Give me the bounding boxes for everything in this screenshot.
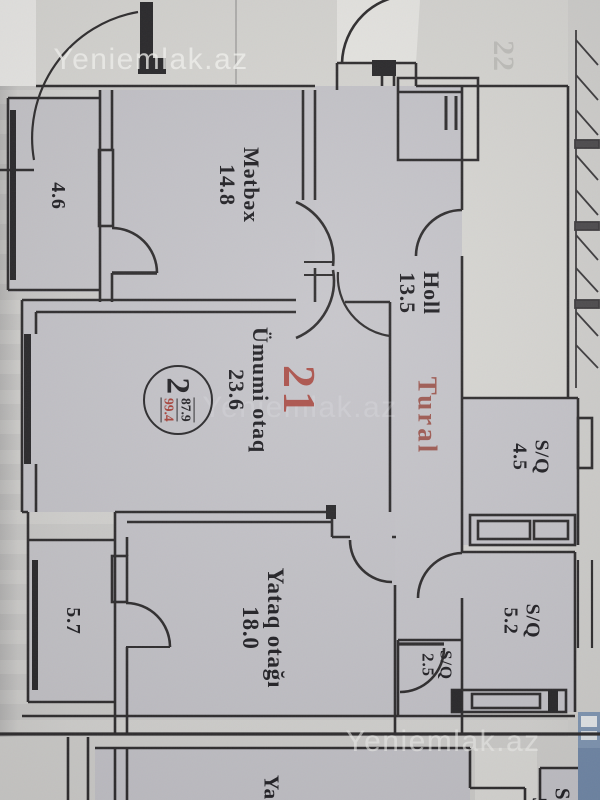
room-label-balcony-bottom: 5.7 [61,607,83,634]
room-label-balcony-top: 4.6 [46,182,68,209]
living-area: 23.6 [224,327,248,453]
watermark-top: Yeniemlak.az [53,43,248,77]
adjacent-bedroom-label-partial: Yata [260,775,283,800]
floorplan-photo: Yeniemlak.az Yeniemlak.az Yeniemlak.az M… [0,0,600,800]
bathroom-1-area: 4.5 [508,440,530,475]
room-label-kitchen: Mətbəx 14.8 [215,147,263,223]
stamp-living-area: 87.9 [179,398,195,422]
stamp-room-count: 2 [162,377,195,394]
balcony-bottom-area: 5.7 [61,607,83,634]
hall-area: 13.5 [395,271,419,315]
room-label-hall: Holl 13.5 [395,271,443,315]
room-label-bathroom-2: S/Q 5.2 [499,604,542,639]
adjacent-bathroom-name-partial: S/Q [551,788,574,800]
apartment-number: 21 [274,365,324,417]
stamp-total-area: 99.4 [162,398,179,422]
living-name: Ümumi otaq [248,327,272,453]
adjacent-bathroom-area-partial: 5. [528,788,551,800]
room-label-living: Ümumi otaq 23.6 [224,327,272,453]
watermark-bottom: Yeniemlak.az [345,725,540,759]
area-stamp-circle: 2 87.9 99.4 [143,365,213,435]
balcony-top-area: 4.6 [46,182,68,209]
room-label-bathroom-3: S/Q 2.5 [418,650,455,680]
adjacent-bathroom-label-partial: S/Q 5. [528,788,573,800]
kitchen-name: Mətbəx [239,147,263,223]
bathroom-1-name: S/Q [530,440,552,475]
hall-name: Holl [419,271,443,315]
bedroom-area: 18.0 [237,568,262,689]
room-label-bedroom: Yataq otağı 18.0 [237,568,287,689]
bedroom-name: Yataq otağı [262,568,287,689]
agent-name: Tural [412,377,441,456]
bathroom-3-area: 2.5 [418,650,436,680]
stamp-areas: 87.9 99.4 [161,397,195,423]
area-stamp-content: 2 87.9 99.4 [161,377,195,422]
bathroom-3-name: S/Q [436,650,454,680]
neighbor-apartment-number: 22 [487,40,519,72]
room-label-bathroom-1: S/Q 4.5 [508,440,551,475]
bathroom-2-area: 5.2 [499,604,521,639]
bathroom-2-name: S/Q [521,604,543,639]
kitchen-area: 14.8 [215,147,239,223]
